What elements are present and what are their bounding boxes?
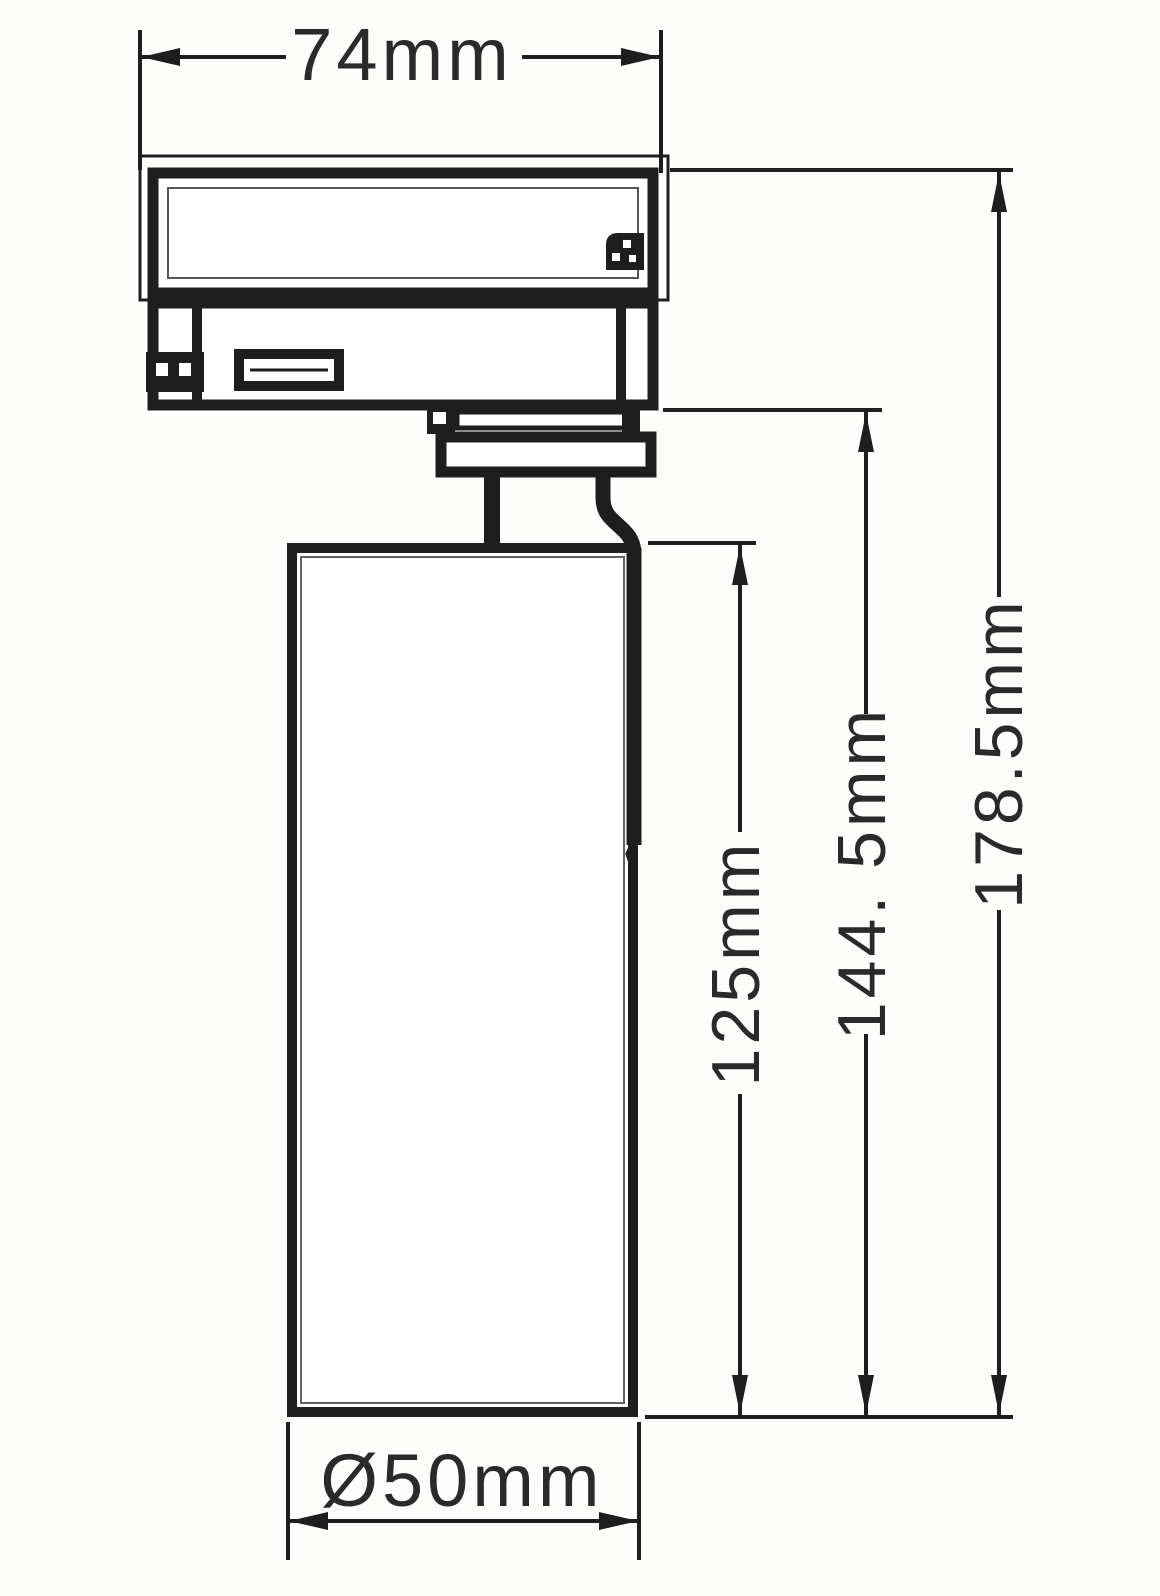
neck-end-cap [622,405,640,434]
screw-dot [612,253,620,261]
track-adapter-housing [153,173,653,293]
dim-label-144-5mm: 144. 5mm [824,706,900,1040]
rotation-collar [441,437,651,472]
dimension-drawing: 74mm 178.5mm 144. 5mm [0,0,1160,1596]
contact-pin [156,363,168,376]
screw-dot [623,240,631,248]
dim-label-178-5mm: 178.5mm [961,597,1037,908]
neck-notch-hole [433,412,446,424]
screw-dot [629,255,636,262]
neck-plate [457,412,625,428]
adapter-gear-box [153,303,653,405]
dim-label-diameter-50mm: Ø50mm [320,1439,603,1522]
dim-label-74mm: 74mm [291,13,513,96]
dim-label-125mm: 125mm [698,840,774,1087]
contact-pin [179,363,191,376]
latch-screw-icon [606,233,644,270]
drawing-canvas: 74mm 178.5mm 144. 5mm [0,0,1160,1596]
lamp-body-cylinder [292,548,633,1412]
contact-block [146,352,204,392]
